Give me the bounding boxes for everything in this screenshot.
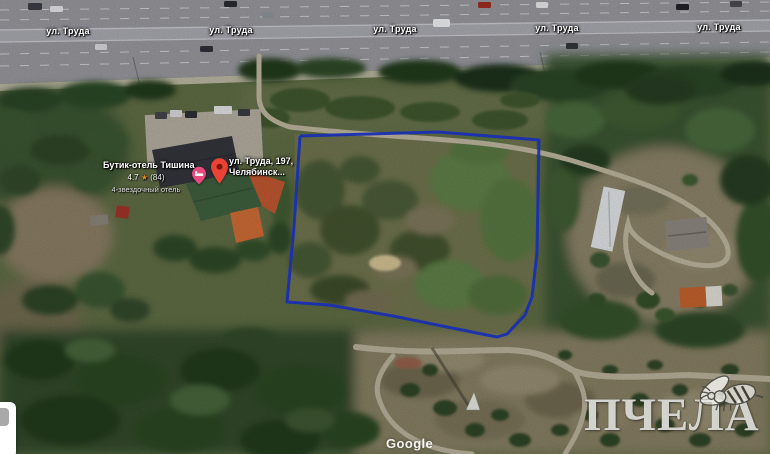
street-label: ул. Труда	[209, 25, 252, 35]
marker-address-label: ул. Труда, 197, Челябинск...	[229, 156, 293, 178]
place-rating: 4.7 ★ (84)	[103, 173, 189, 182]
street-label: ул. Труда	[697, 22, 740, 32]
star-icon: ★	[141, 173, 148, 182]
satellite-map-view[interactable]: ул. Труда ул. Труда ул. Труда ул. Труда …	[0, 0, 770, 454]
map-control-grip	[0, 408, 9, 426]
place-category: 4-звездочный отель	[103, 185, 189, 194]
place-name: Бутик-отель Тишина	[103, 161, 189, 170]
street-label: ул. Труда	[46, 26, 89, 36]
address-line-2: Челябинск...	[229, 167, 293, 178]
google-watermark: Google	[386, 436, 433, 451]
street-label: ул. Труда	[373, 24, 416, 34]
hotel-pin-icon[interactable]	[192, 166, 206, 185]
place-label-hotel[interactable]: Бутик-отель Тишина 4.7 ★ (84) 4-звездочн…	[103, 161, 189, 194]
review-count: (84)	[150, 173, 164, 182]
rating-value: 4.7	[128, 173, 139, 182]
map-pin-icon[interactable]	[211, 157, 228, 185]
address-line-1: ул. Труда, 197,	[229, 156, 293, 167]
map-control[interactable]	[0, 402, 16, 454]
bee-icon	[686, 364, 770, 420]
street-label: ул. Труда	[535, 23, 578, 33]
satellite-imagery[interactable]	[0, 0, 770, 454]
